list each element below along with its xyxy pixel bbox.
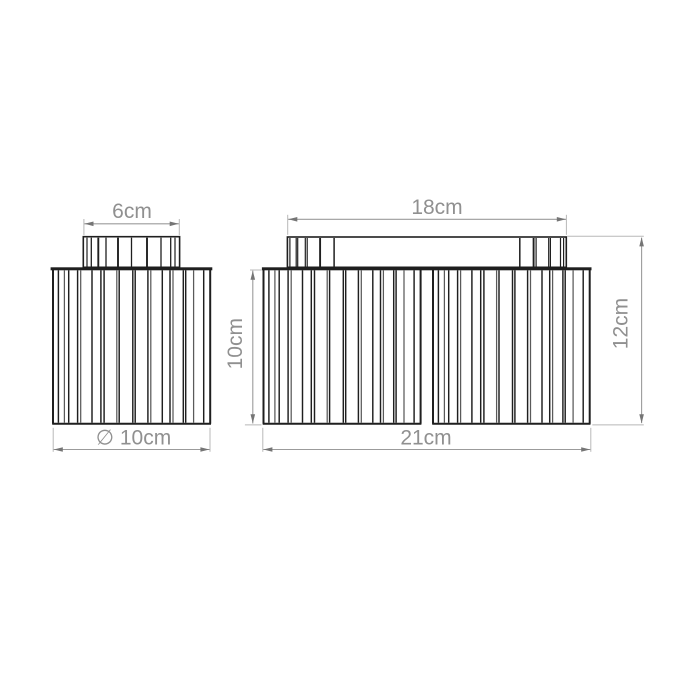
svg-text:12cm: 12cm <box>610 298 633 349</box>
svg-text:6cm: 6cm <box>112 200 152 223</box>
svg-text:∅ 10cm: ∅ 10cm <box>96 426 171 449</box>
svg-text:10cm: 10cm <box>224 318 247 369</box>
svg-text:21cm: 21cm <box>400 426 451 449</box>
svg-text:18cm: 18cm <box>411 196 462 219</box>
